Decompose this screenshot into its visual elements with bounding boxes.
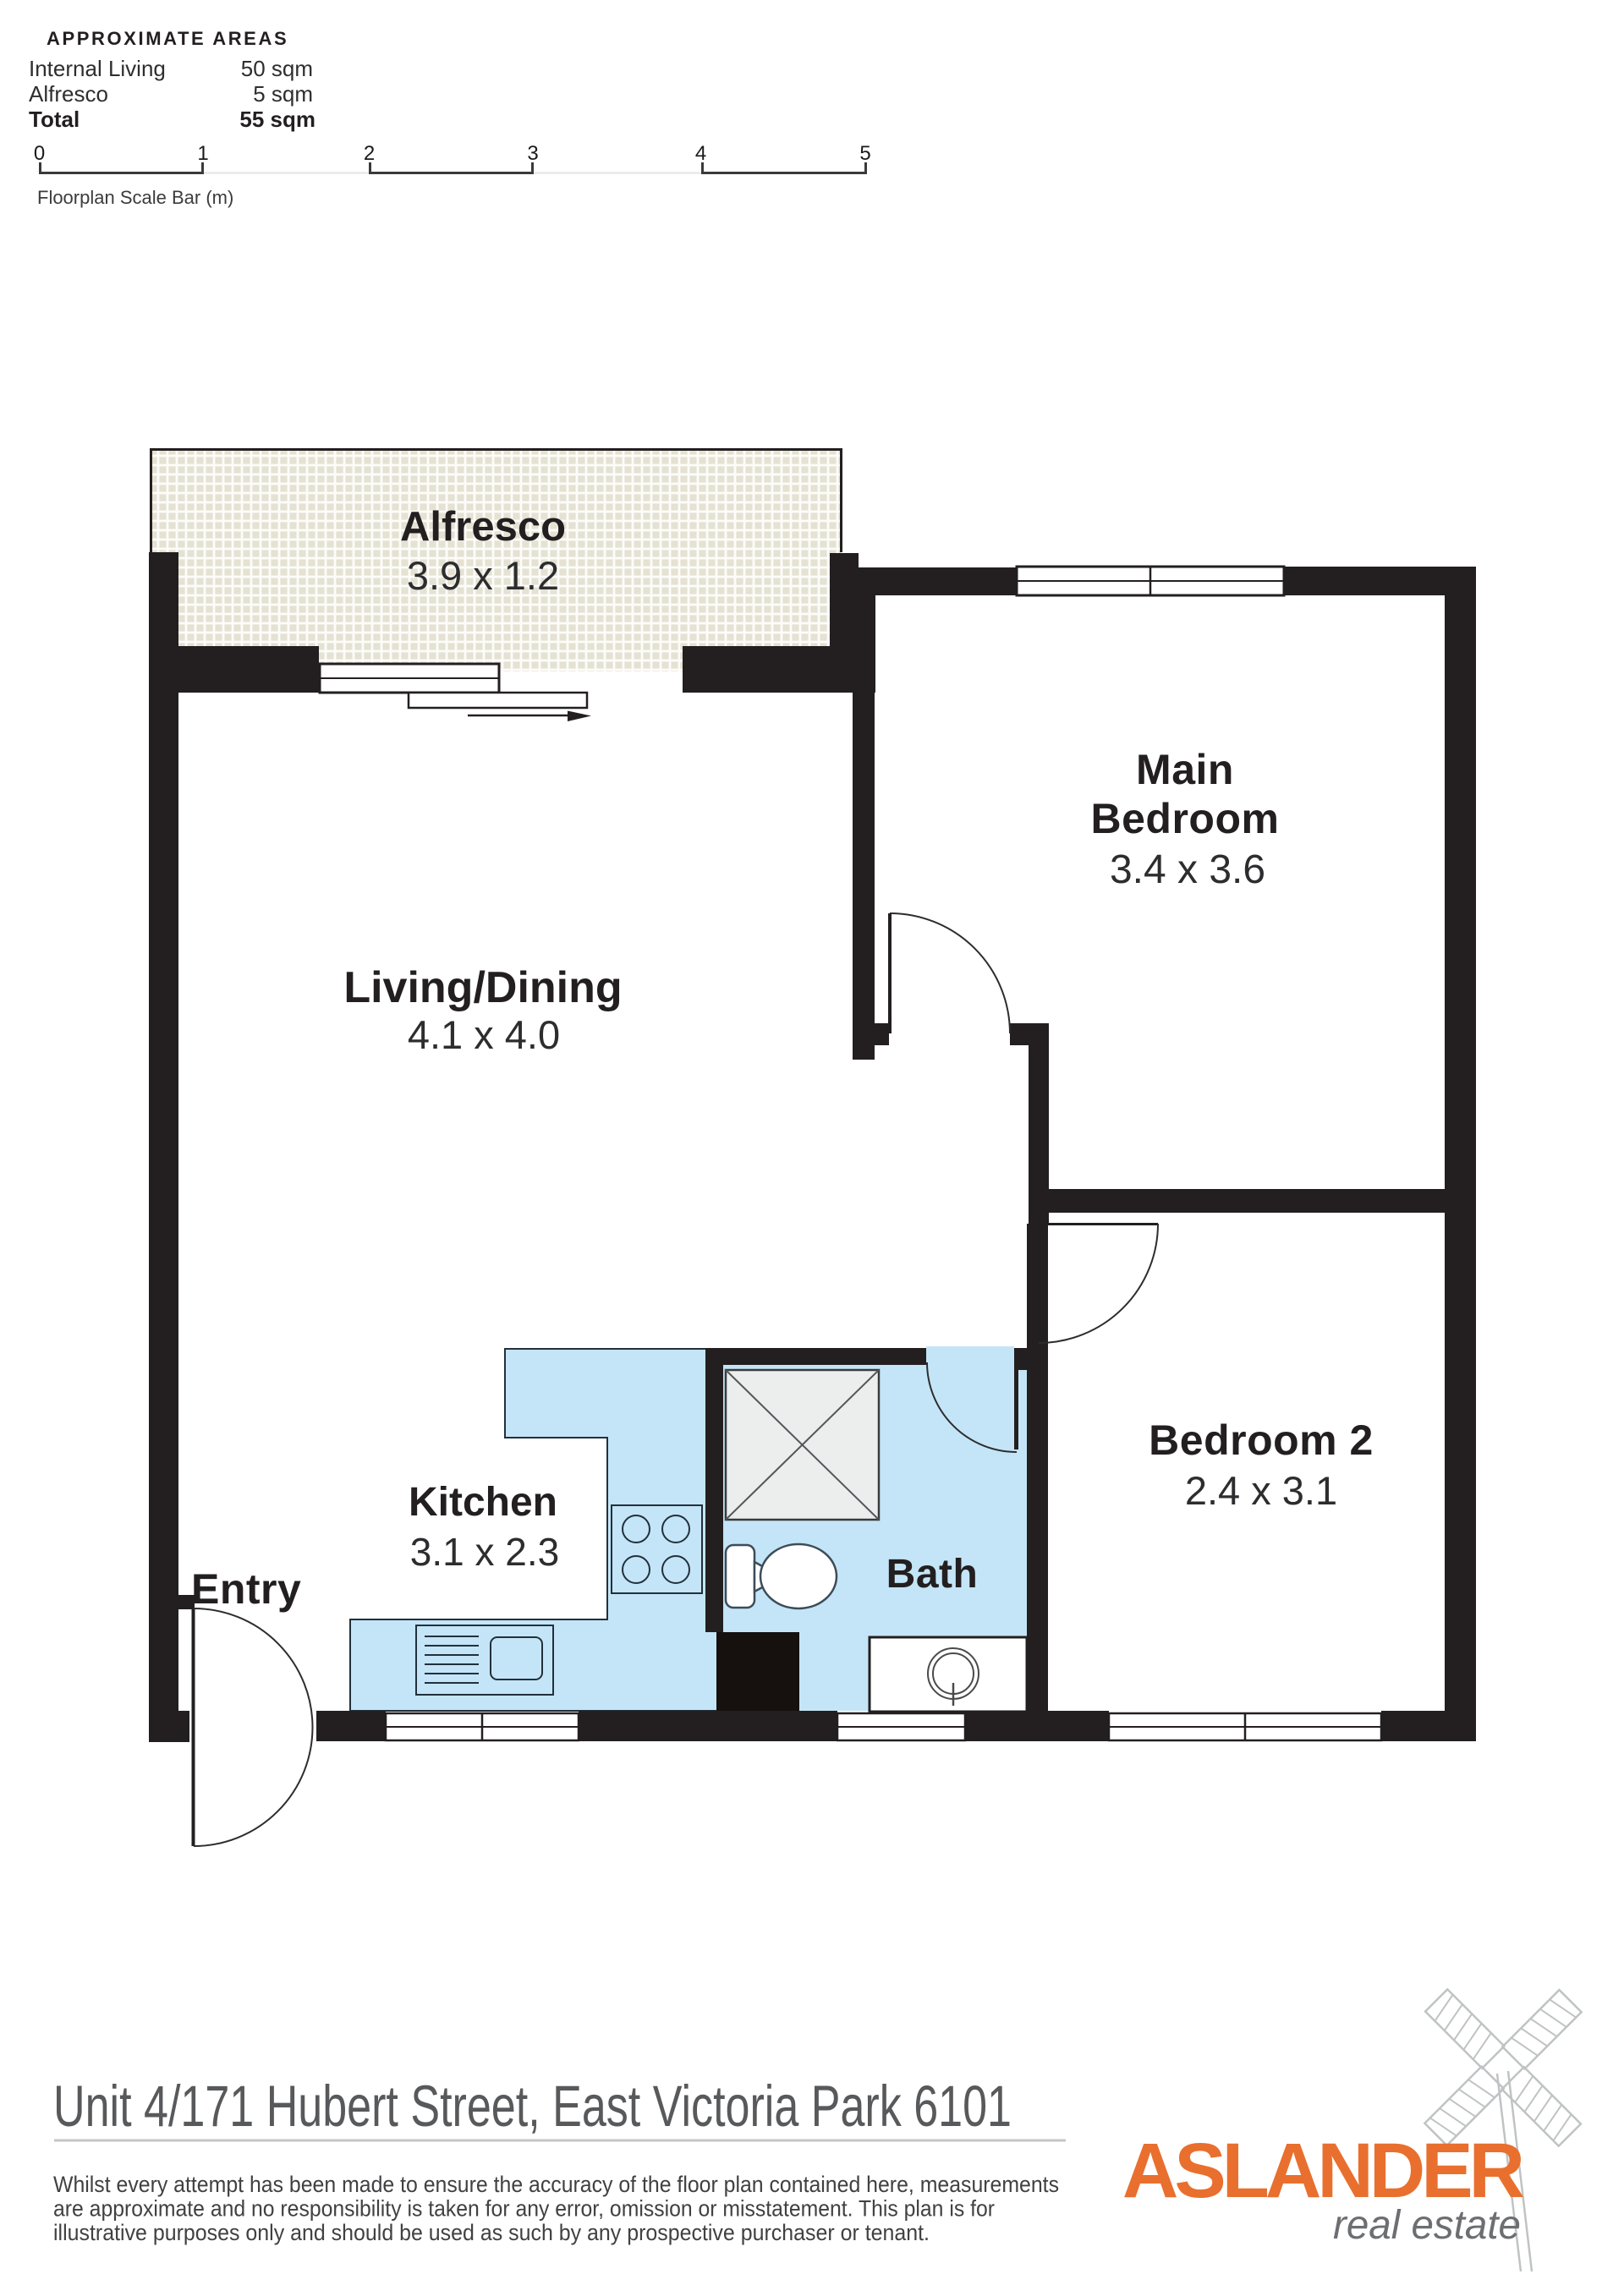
svg-text:2.4 x 3.1: 2.4 x 3.1 — [1185, 1468, 1337, 1513]
svg-text:2: 2 — [364, 142, 375, 165]
svg-text:Floorplan Scale Bar (m): Floorplan Scale Bar (m) — [37, 187, 233, 208]
svg-text:illustrative purposes only and: illustrative purposes only and should be… — [53, 2220, 930, 2245]
svg-text:0: 0 — [34, 142, 45, 165]
svg-text:are approximate and no respons: are approximate and no responsibility is… — [53, 2196, 995, 2222]
svg-text:Main: Main — [1136, 746, 1234, 793]
svg-text:50 sqm: 50 sqm — [241, 56, 313, 81]
svg-text:ASLANDER: ASLANDER — [1122, 2128, 1524, 2214]
svg-text:Alfresco: Alfresco — [400, 504, 566, 550]
svg-text:1: 1 — [197, 142, 208, 165]
svg-text:APPROXIMATE AREAS: APPROXIMATE AREAS — [47, 28, 288, 49]
svg-text:4.1 x 4.0: 4.1 x 4.0 — [408, 1012, 560, 1057]
svg-text:Total: Total — [29, 107, 80, 132]
svg-text:55 sqm: 55 sqm — [239, 107, 315, 132]
svg-text:Entry: Entry — [191, 1565, 301, 1613]
svg-text:Whilst every attempt has been: Whilst every attempt has been made to en… — [53, 2172, 1059, 2197]
svg-text:real estate: real estate — [1333, 2203, 1521, 2248]
svg-text:Kitchen: Kitchen — [409, 1480, 557, 1525]
svg-text:5 sqm: 5 sqm — [253, 81, 313, 107]
svg-text:4: 4 — [695, 142, 706, 165]
svg-text:3: 3 — [527, 142, 538, 165]
svg-text:Bedroom 2: Bedroom 2 — [1149, 1417, 1374, 1464]
svg-text:Living/Dining: Living/Dining — [343, 963, 622, 1012]
svg-text:3.1 x 2.3: 3.1 x 2.3 — [410, 1530, 559, 1574]
svg-text:3.4 x 3.6: 3.4 x 3.6 — [1110, 847, 1265, 892]
svg-text:Bedroom: Bedroom — [1091, 795, 1280, 842]
svg-text:Internal Living: Internal Living — [29, 56, 166, 81]
svg-text:Unit 4/171 Hubert Street, East: Unit 4/171 Hubert Street, East Victoria … — [53, 2074, 1012, 2139]
svg-text:5: 5 — [859, 142, 870, 165]
svg-text:3.9 x 1.2: 3.9 x 1.2 — [407, 553, 559, 598]
svg-text:Alfresco: Alfresco — [29, 81, 108, 107]
svg-text:Bath: Bath — [886, 1552, 979, 1597]
